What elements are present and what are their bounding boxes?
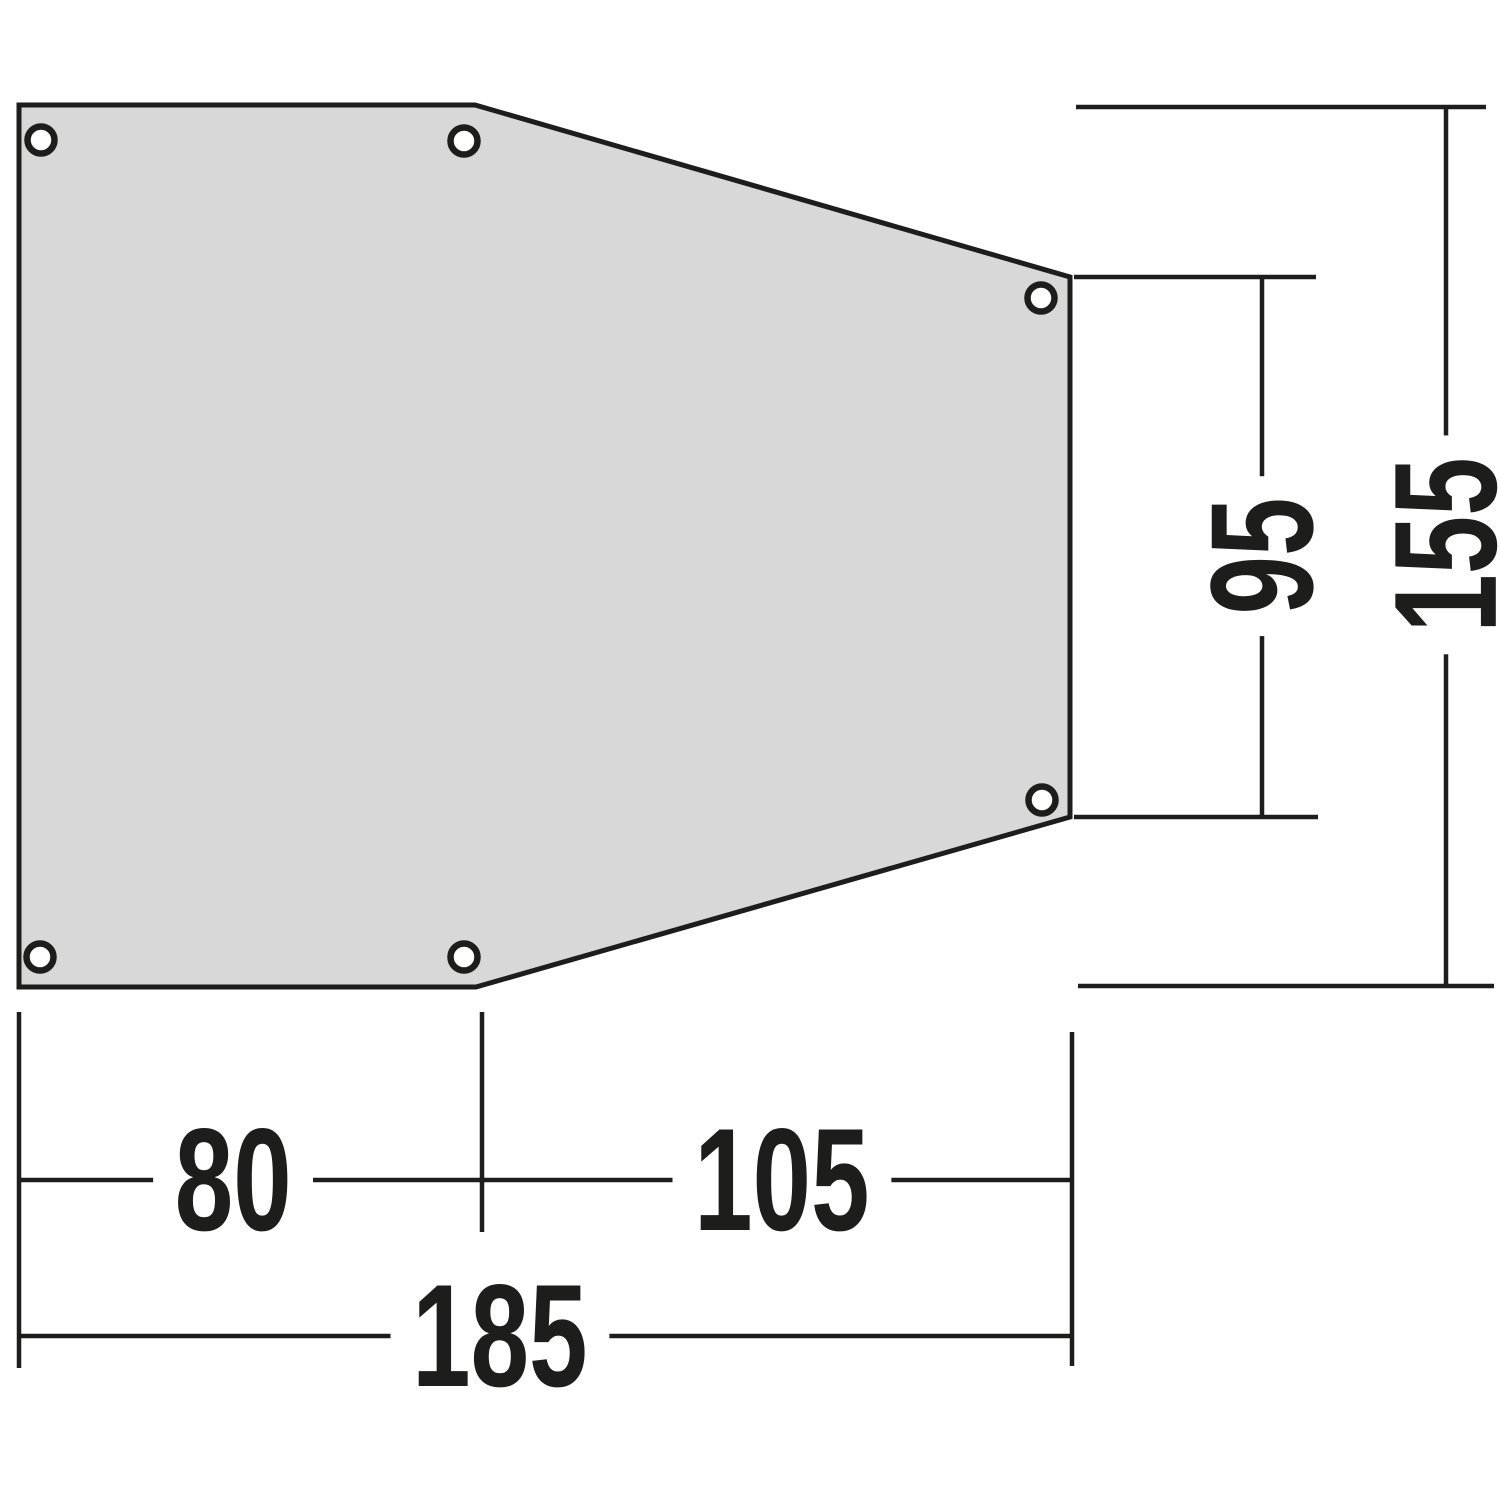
dimension-label-right-inner-height: 95 — [1189, 476, 1335, 636]
dimension-label-bottom-total-width: 185 — [391, 1263, 610, 1409]
grommet-hole-bottom-middle — [451, 944, 478, 971]
grommet-hole-right-bottom — [1029, 787, 1056, 814]
technical-drawing-canvas: 80 105 185 95 155 — [0, 0, 1500, 1500]
dimension-label-bottom-right-width: 105 — [673, 1107, 892, 1253]
drawing-svg — [0, 0, 1500, 1500]
dimension-label-right-total-height: 155 — [1373, 436, 1500, 655]
panel-shape — [19, 105, 1070, 987]
grommet-hole-top-left — [28, 127, 55, 154]
dimension-label-bottom-left-width: 80 — [153, 1107, 313, 1253]
grommet-hole-right-top — [1028, 285, 1055, 312]
grommet-hole-top-middle — [451, 128, 478, 155]
grommet-hole-bottom-left — [27, 944, 54, 971]
